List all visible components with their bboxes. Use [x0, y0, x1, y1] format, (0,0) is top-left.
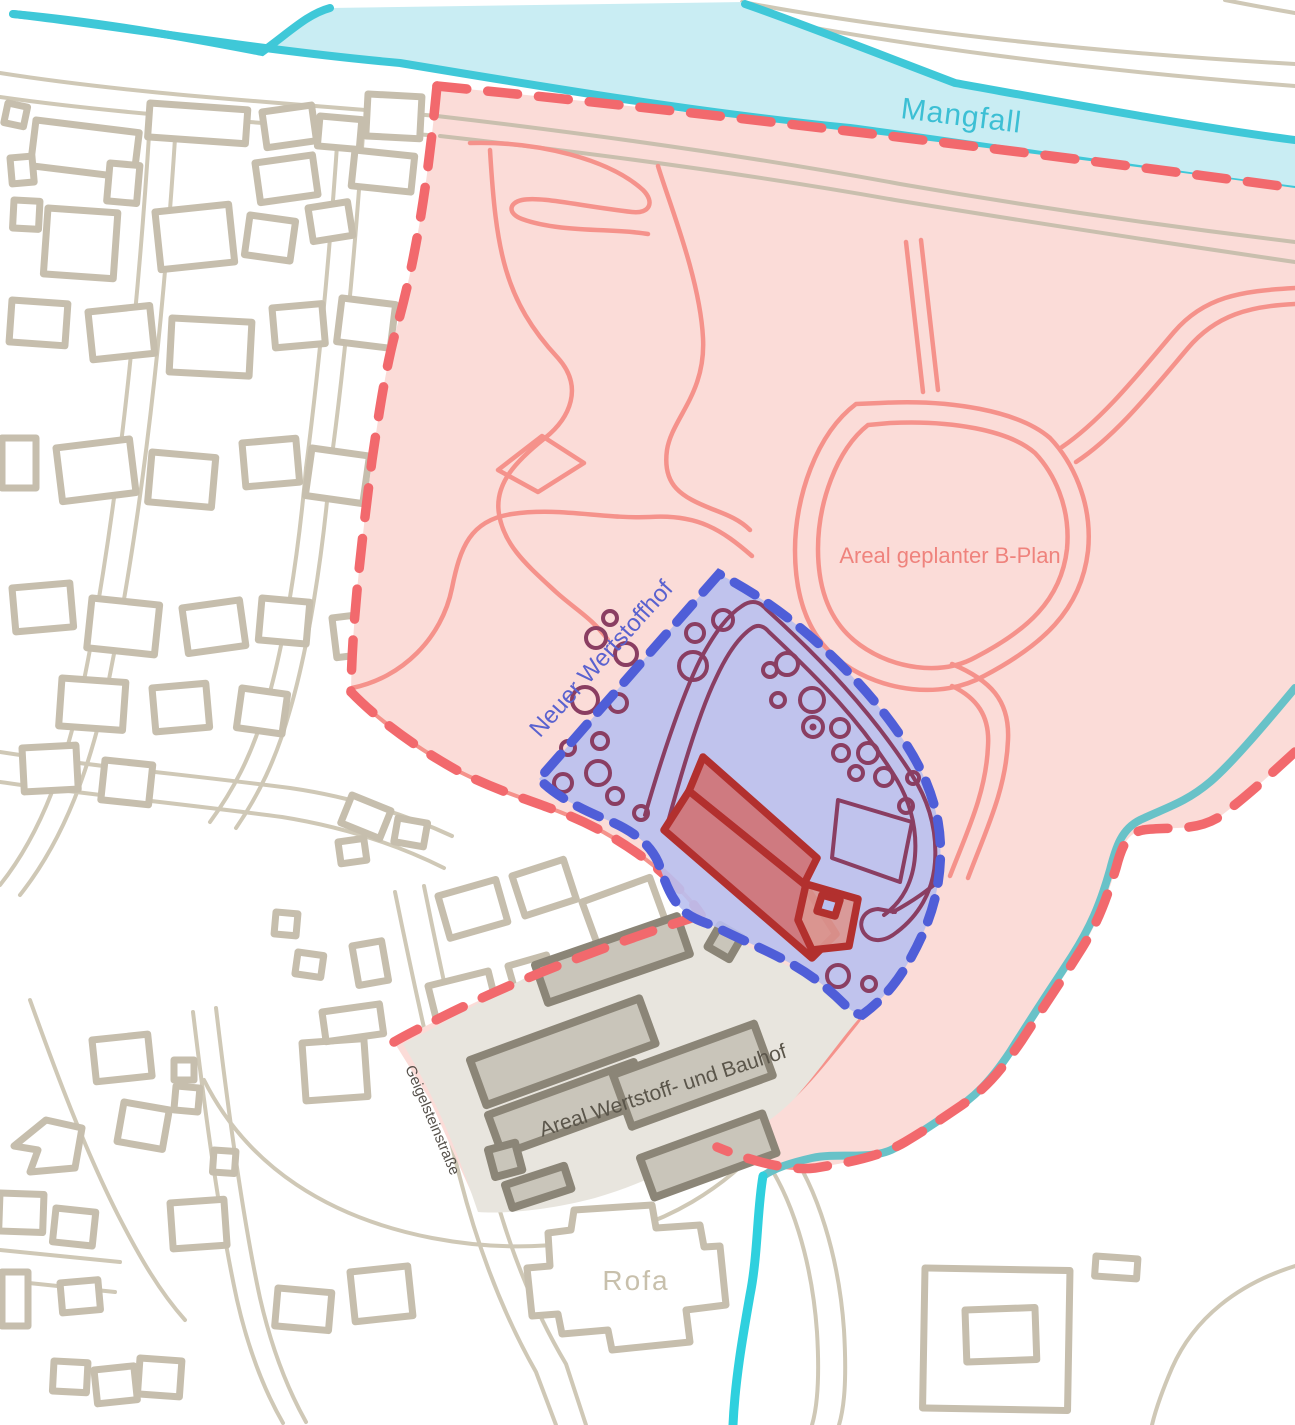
stream-lower: [733, 1176, 763, 1425]
plan-map: Mangfall A: [0, 0, 1295, 1425]
bplan-label: Areal geplanter B-Plan: [839, 543, 1060, 568]
planned-building-notch: [817, 895, 840, 916]
map-canvas: Mangfall A: [0, 0, 1295, 1425]
chevron-building: [14, 1120, 82, 1172]
rofa-label: Rofa: [602, 1265, 669, 1296]
